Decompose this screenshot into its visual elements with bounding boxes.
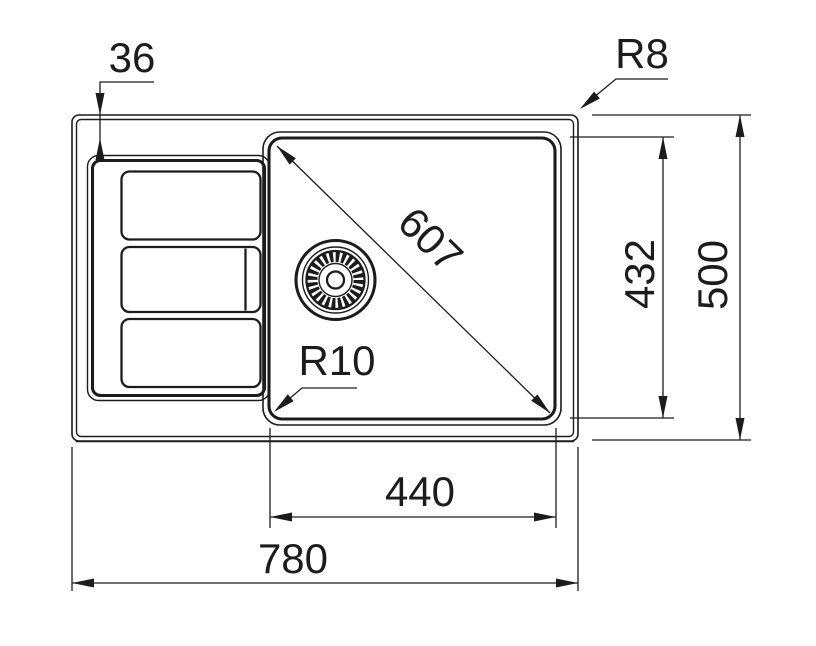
drainboard-channel-2 [122, 247, 261, 312]
dim-36-arrow-up [96, 138, 105, 160]
sink-dimension-drawing: 36 R8 607 R10 432 500 [0, 0, 816, 646]
dim-440-arrow-right [534, 513, 556, 522]
dimension-r8: R8 [580, 30, 669, 109]
dim-440-label: 440 [385, 468, 455, 515]
dim-36-leader-line [100, 82, 154, 160]
drainboard-channel-1 [122, 172, 261, 240]
dim-r8-label: R8 [615, 30, 669, 77]
dim-500-arrow-down [736, 418, 745, 440]
dimension-36: 36 [96, 34, 156, 160]
dim-36-label: 36 [109, 34, 156, 81]
dimension-432: 432 [570, 137, 674, 418]
drain-hub-ring [319, 264, 352, 297]
drainboard [88, 156, 270, 401]
dim-500-label: 500 [689, 240, 736, 310]
drain-center-hole [327, 272, 344, 289]
dim-780-arrow-right [556, 579, 578, 588]
dimension-780: 780 [72, 447, 578, 591]
sink-outline [72, 115, 578, 442]
dim-36-arrow-down [96, 93, 105, 115]
dim-432-label: 432 [616, 239, 663, 309]
drainboard-channel-3 [122, 319, 261, 387]
dim-r10-label: R10 [298, 337, 375, 384]
dimension-440: 440 [270, 428, 556, 528]
sink-inner-rim-edge [77, 120, 574, 437]
drain-strainer [296, 241, 375, 320]
sink-outer-edge [72, 115, 578, 441]
dim-432-arrow-up [659, 137, 668, 159]
drainboard-inner-edge [93, 161, 265, 396]
dim-500-arrow-up [736, 115, 745, 137]
dim-780-arrow-left [72, 579, 94, 588]
dim-432-arrow-down [659, 396, 668, 418]
drainboard-channels [122, 172, 261, 388]
drainboard-outer-edge [88, 156, 270, 401]
dim-780-label: 780 [258, 535, 328, 582]
dim-440-arrow-left [270, 513, 292, 522]
dimension-r10: R10 [274, 337, 376, 412]
technical-drawing-canvas: 36 R8 607 R10 432 500 [0, 0, 816, 646]
